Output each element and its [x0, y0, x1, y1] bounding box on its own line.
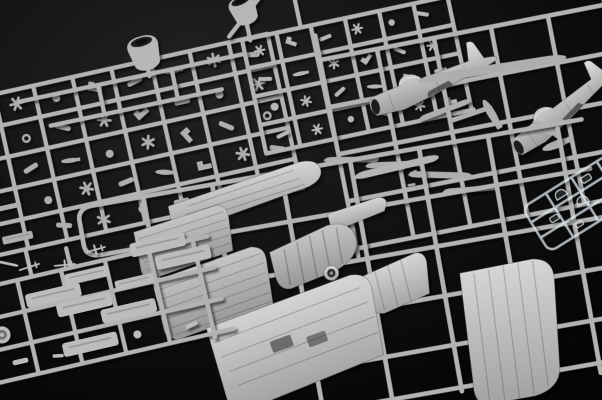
small-part — [259, 77, 272, 81]
sprues-photograph: Photograph of gray plastic model kit spr… — [0, 0, 602, 400]
outer-wing-panel — [457, 256, 571, 400]
photo-canvas: Photograph of gray plastic model kit spr… — [0, 0, 602, 400]
small-part — [52, 354, 63, 358]
small-part — [56, 222, 72, 228]
